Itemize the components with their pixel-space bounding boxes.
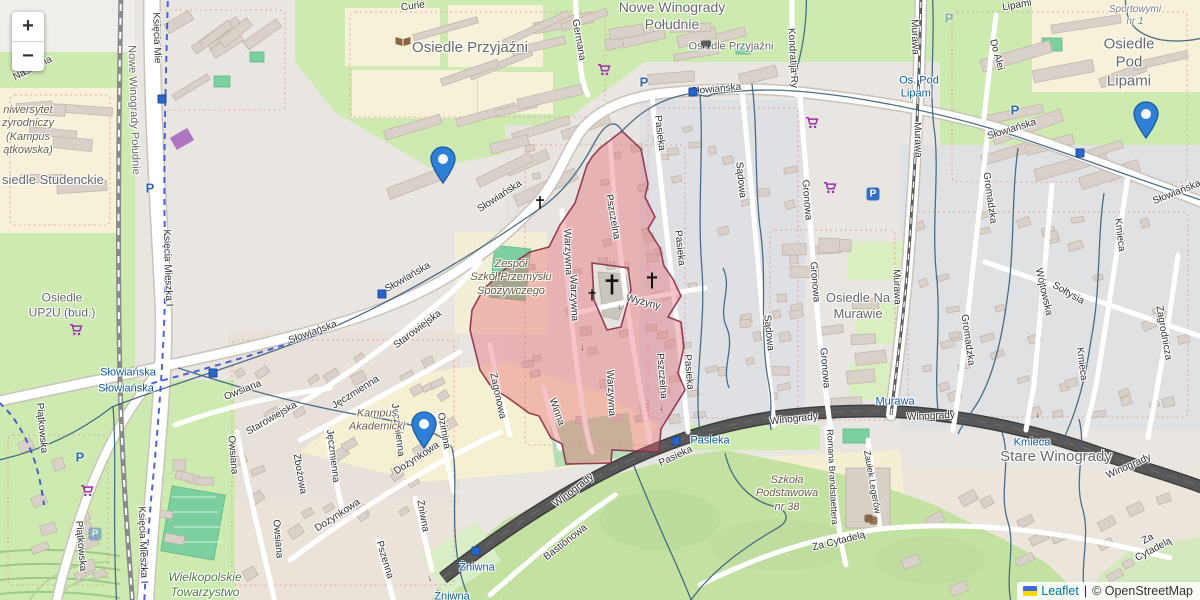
marker-pin[interactable] <box>411 411 437 449</box>
zoom-out-button[interactable]: − <box>12 42 44 71</box>
map-container[interactable]: Osiedle PrzyjaźniNowe Winogrady Południe… <box>0 0 1200 600</box>
marker-pin[interactable] <box>1133 101 1159 139</box>
ukraine-flag-icon <box>1023 586 1037 596</box>
attribution-bar: Leaflet | © OpenStreetMap <box>1017 582 1200 600</box>
zoom-in-button[interactable]: + <box>12 12 44 42</box>
marker-pin[interactable] <box>430 146 456 184</box>
zoom-control: + − <box>12 12 44 71</box>
map-canvas[interactable] <box>0 0 1200 600</box>
attribution-separator: | <box>1084 584 1087 598</box>
leaflet-link[interactable]: Leaflet <box>1041 584 1079 598</box>
osm-link[interactable]: © OpenStreetMap <box>1092 584 1193 598</box>
